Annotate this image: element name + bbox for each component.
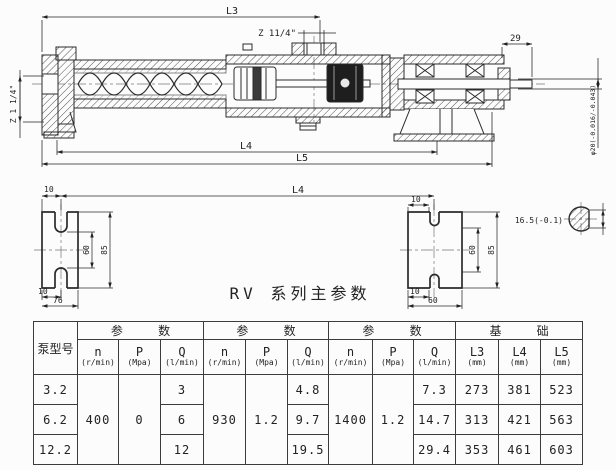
label-lv-top: 10 [44,185,54,194]
label-l4-views: L4 [292,185,304,196]
l4-cell: 381 [499,375,541,405]
col-header-l5: L5(mm) [541,340,583,375]
label-rv-top: 10 [411,195,421,204]
parameters-table: 泵型号 参 数 参 数 参 数 基 础 n(r/min) P(Mpa) Q(l/… [33,321,583,465]
q3-cell: 14.7 [414,405,456,435]
dim-port-left [20,70,44,138]
table-group-header-row: 泵型号 参 数 参 数 参 数 基 础 [34,322,583,340]
dim-port-top [298,30,336,44]
n3-cell: 1400 [329,375,373,465]
model-cell: 12.2 [34,435,78,465]
l3-cell: 353 [456,435,499,465]
l3-cell: 273 [456,375,499,405]
bearing-housing [390,55,532,141]
n1-cell: 400 [78,375,119,465]
col-header-p2: P(Mpa) [246,340,288,375]
q2-cell: 4.8 [288,375,329,405]
q2-cell: 9.7 [288,405,329,435]
col-header-n3: n(r/min) [329,340,373,375]
p3-cell: 1.2 [373,375,414,465]
l4-cell: 461 [499,435,541,465]
engineering-drawing-page: L3 Z 11/4" 29 φ20(-0.016/-0.043) Z 1 1/4… [0,0,616,470]
key-section-detail [569,207,589,231]
label-lv-bottom-a: 10 [38,287,48,296]
col-header-n1: n(r/min) [78,340,119,375]
col-header-p1: P(Mpa) [119,340,161,375]
label-shaft-dia: φ20(-0.016/-0.043) [589,85,597,155]
col-header-n2: n(r/min) [204,340,246,375]
label-l4: L4 [240,141,252,152]
label-lv-outer: 85 [100,245,109,255]
model-cell: 6.2 [34,405,78,435]
table-sub-header-row: n(r/min) P(Mpa) Q(l/min) n(r/min) P(Mpa)… [34,340,583,375]
q3-cell: 7.3 [414,375,456,405]
p2-cell: 1.2 [246,375,288,465]
label-29: 29 [510,34,521,44]
group-header-foundation: 基 础 [456,322,583,340]
col-header-q3: Q(l/min) [414,340,456,375]
col-header-q1: Q(l/min) [161,340,204,375]
l4-cell: 421 [499,405,541,435]
label-key-section: 16.5(-0.1) [515,216,563,225]
group-header-params-3: 参 数 [329,322,456,340]
q1-cell: 12 [161,435,204,465]
l5-cell: 523 [541,375,583,405]
label-l5: L5 [296,153,308,164]
col-header-q2: Q(l/min) [288,340,329,375]
q1-cell: 3 [161,375,204,405]
p1-cell: 0 [119,375,161,465]
n2-cell: 930 [204,375,246,465]
page-title: RV 系列主参数 [170,280,430,304]
label-rv-outer: 85 [487,245,496,255]
col-header-l4: L4(mm) [499,340,541,375]
q3-cell: 29.4 [414,435,456,465]
label-lv-bottom-b: 76 [53,296,63,305]
label-port-top: Z 11/4" [258,29,296,39]
pump-section-drawing: L3 Z 11/4" 29 φ20(-0.016/-0.043) Z 1 1/4… [0,0,616,312]
model-column-header: 泵型号 [34,322,78,375]
col-header-p3: P(Mpa) [373,340,414,375]
label-lv-inner: 60 [82,245,91,255]
label-rv-inner: 60 [468,245,477,255]
model-cell: 3.2 [34,375,78,405]
group-header-params-2: 参 数 [204,322,329,340]
group-header-params-1: 参 数 [78,322,204,340]
table-row: 3.2 400 0 3 930 1.2 4.8 1400 1.2 7.3 273… [34,375,583,405]
col-header-l3: L3(mm) [456,340,499,375]
l5-cell: 603 [541,435,583,465]
q2-cell: 19.5 [288,435,329,465]
suction-housing [226,43,390,130]
l3-cell: 313 [456,405,499,435]
label-l3: L3 [226,6,238,17]
l5-cell: 563 [541,405,583,435]
q1-cell: 6 [161,405,204,435]
label-port-left: Z 1 1/4" [9,85,18,124]
centerlines [32,36,598,297]
discharge-flange [42,47,76,138]
